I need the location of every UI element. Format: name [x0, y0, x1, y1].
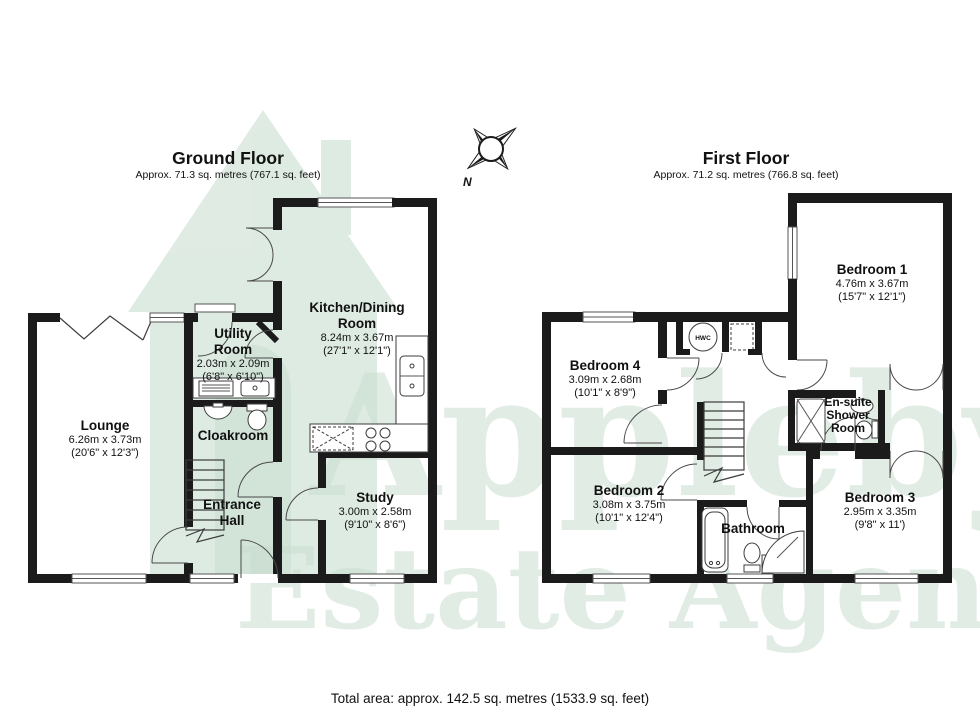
room-dim-metric: 8.24m x 3.67m [298, 332, 416, 345]
room-dim-metric: 3.00m x 2.58m [320, 506, 430, 519]
hwc-label: HWC [695, 335, 711, 342]
room-name: Bedroom 3 [820, 490, 940, 506]
room-dim-metric: 4.76m x 3.67m [812, 278, 932, 291]
room-dim-metric: 2.95m x 3.35m [820, 506, 940, 519]
floorplan-drawing: Appleby's Estate Agents N [0, 0, 980, 712]
room-label-bedroom-3: Bedroom 3 2.95m x 3.35m (9'8" x 11') [820, 490, 940, 532]
room-dim-imperial: (27'1" x 12'1") [298, 345, 416, 358]
room-dim-imperial: (9'8" x 11') [820, 519, 940, 532]
room-dim-metric: 3.09m x 2.68m [545, 374, 665, 387]
room-name: Study [320, 490, 430, 506]
room-name: Bedroom 4 [545, 358, 665, 374]
room-label-bedroom-2: Bedroom 2 3.08m x 3.75m (10'1" x 12'4") [569, 483, 689, 525]
compass-rose-icon: N [463, 128, 516, 189]
room-name: Cloakroom [178, 428, 288, 444]
room-dim-imperial: (20'6" x 12'3") [45, 447, 165, 460]
room-label-entrance-hall: Entrance Hall [192, 497, 272, 529]
floorplan-page: Appleby's Estate Agents N [0, 0, 980, 712]
room-label-cloakroom: Cloakroom [178, 428, 288, 444]
room-name: Kitchen/Dining Room [298, 300, 416, 332]
watermark-line2: Estate Agents [235, 524, 980, 655]
room-label-bedroom-1: Bedroom 1 4.76m x 3.67m (15'7" x 12'1") [812, 262, 932, 304]
first-floor-subtitle: Approx. 71.2 sq. metres (766.8 sq. feet) [653, 169, 838, 181]
room-name: Bedroom 2 [569, 483, 689, 499]
ground-floor-title: Ground Floor [172, 148, 284, 169]
room-name: Utility Room [194, 326, 272, 358]
room-dim-imperial: (15'7" x 12'1") [812, 291, 932, 304]
room-dim-imperial: (9'10" x 8'6") [320, 519, 430, 532]
room-dim-imperial: (10'1" x 12'4") [569, 512, 689, 525]
room-label-en-suite-shower-room: En-suite Shower Room [816, 396, 880, 436]
compass-north-label: N [463, 175, 472, 189]
room-dim-imperial: (6'8" x 6'10") [194, 371, 272, 384]
room-label-utility-room: Utility Room 2.03m x 2.09m (6'8" x 6'10"… [194, 326, 272, 384]
room-name: Lounge [45, 418, 165, 434]
total-area-text: Total area: approx. 142.5 sq. metres (15… [331, 691, 649, 706]
room-dim-metric: 3.08m x 3.75m [569, 499, 689, 512]
room-dim-metric: 2.03m x 2.09m [194, 358, 272, 371]
room-label-study: Study 3.00m x 2.58m (9'10" x 8'6") [320, 490, 430, 532]
room-name: En-suite Shower Room [816, 396, 880, 436]
room-label-kitchen-dining-room: Kitchen/Dining Room 8.24m x 3.67m (27'1"… [298, 300, 416, 358]
room-dim-metric: 6.26m x 3.73m [45, 434, 165, 447]
room-label-bathroom: Bathroom [703, 521, 803, 537]
room-dim-imperial: (10'1" x 8'9") [545, 387, 665, 400]
ground-floor-subtitle: Approx. 71.3 sq. metres (767.1 sq. feet) [135, 169, 320, 181]
room-label-bedroom-4: Bedroom 4 3.09m x 2.68m (10'1" x 8'9") [545, 358, 665, 400]
first-floor-title: First Floor [703, 148, 790, 169]
room-name: Entrance Hall [192, 497, 272, 529]
room-name: Bathroom [703, 521, 803, 537]
room-label-lounge: Lounge 6.26m x 3.73m (20'6" x 12'3") [45, 418, 165, 460]
room-name: Bedroom 1 [812, 262, 932, 278]
